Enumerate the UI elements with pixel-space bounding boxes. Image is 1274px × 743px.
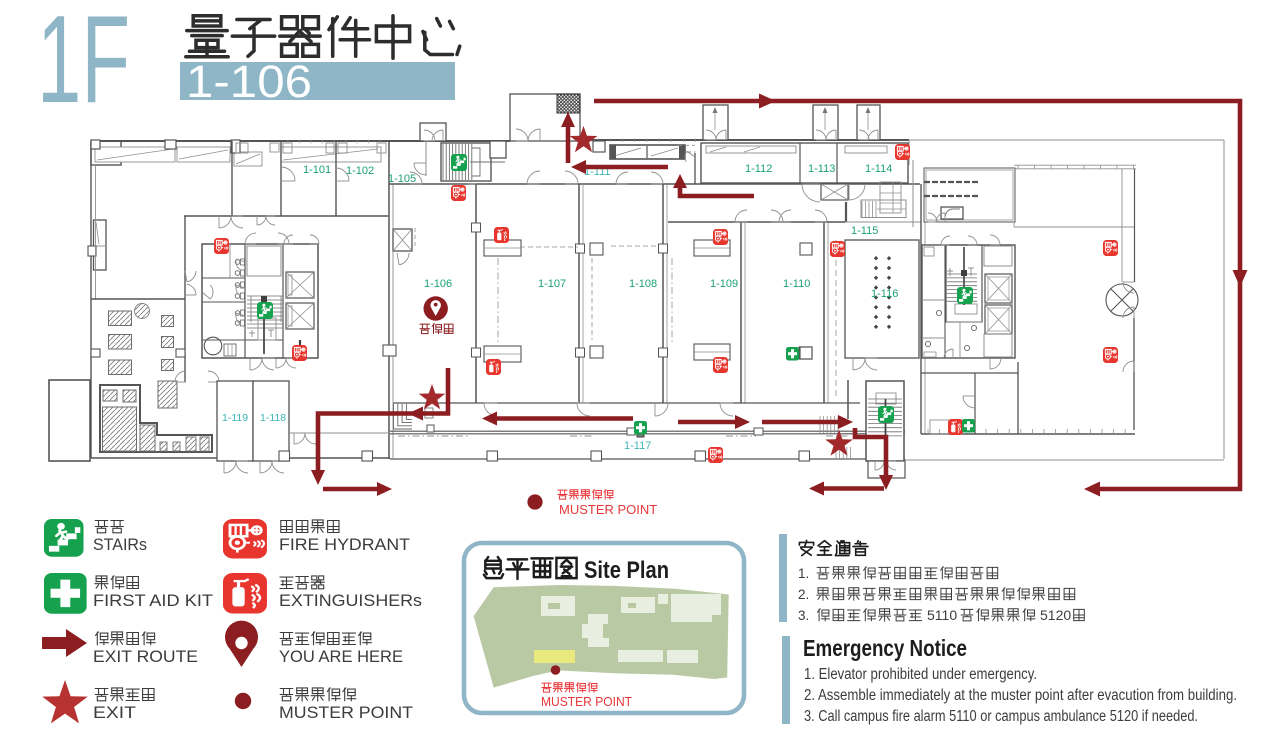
- svg-text:1-119: 1-119: [222, 412, 248, 424]
- svg-text:1-113: 1-113: [808, 163, 835, 175]
- svg-text:1-101: 1-101: [303, 164, 331, 176]
- svg-text:1.: 1.: [798, 566, 809, 581]
- svg-text:1-106: 1-106: [424, 278, 452, 290]
- svg-text:1-114: 1-114: [865, 163, 892, 175]
- svg-text:EXIT ROUTE: EXIT ROUTE: [93, 648, 198, 666]
- svg-text:STAIRs: STAIRs: [93, 536, 147, 554]
- svg-text:1-117: 1-117: [624, 440, 651, 452]
- svg-text:1F: 1F: [37, 0, 130, 129]
- svg-text:2.: 2.: [798, 587, 809, 602]
- svg-text:EXIT: EXIT: [93, 704, 136, 722]
- svg-text:MUSTER POINT: MUSTER POINT: [541, 695, 632, 709]
- svg-text:1-110: 1-110: [783, 278, 810, 290]
- svg-text:1-115: 1-115: [851, 225, 878, 237]
- svg-text:1-112: 1-112: [745, 163, 772, 175]
- svg-text:3. Call campus fire alarm 5110: 3. Call campus fire alarm 5110 or campus…: [804, 708, 1198, 725]
- svg-text:2. Assemble immediately at the: 2. Assemble immediately at the muster po…: [804, 687, 1237, 704]
- svg-text:5110: 5110: [927, 607, 957, 623]
- svg-text:Site Plan: Site Plan: [584, 557, 669, 584]
- svg-text:1-118: 1-118: [260, 412, 286, 424]
- svg-text:MUSTER POINT: MUSTER POINT: [559, 502, 657, 517]
- svg-text:1-106: 1-106: [186, 56, 312, 107]
- svg-text:1-109: 1-109: [710, 278, 738, 290]
- svg-text:YOU ARE HERE: YOU ARE HERE: [279, 648, 403, 666]
- svg-text:FIRST AID KIT: FIRST AID KIT: [93, 592, 213, 610]
- svg-text:1-105: 1-105: [388, 173, 416, 185]
- svg-text:5120: 5120: [1040, 607, 1071, 623]
- svg-text:EXTINGUISHERs: EXTINGUISHERs: [279, 592, 422, 610]
- svg-text:1-108: 1-108: [629, 278, 657, 290]
- svg-text:FIRE HYDRANT: FIRE HYDRANT: [279, 536, 410, 554]
- svg-text:3.: 3.: [798, 608, 809, 623]
- svg-text:1-107: 1-107: [538, 278, 566, 290]
- svg-text:1-102: 1-102: [346, 165, 374, 177]
- svg-text:1. Elevator prohibited under: 1. Elevator prohibited under emergency.: [804, 666, 1037, 683]
- svg-text:Emergency Notice: Emergency Notice: [803, 635, 967, 661]
- svg-text:1-116: 1-116: [871, 288, 898, 300]
- svg-text:MUSTER POINT: MUSTER POINT: [279, 704, 413, 722]
